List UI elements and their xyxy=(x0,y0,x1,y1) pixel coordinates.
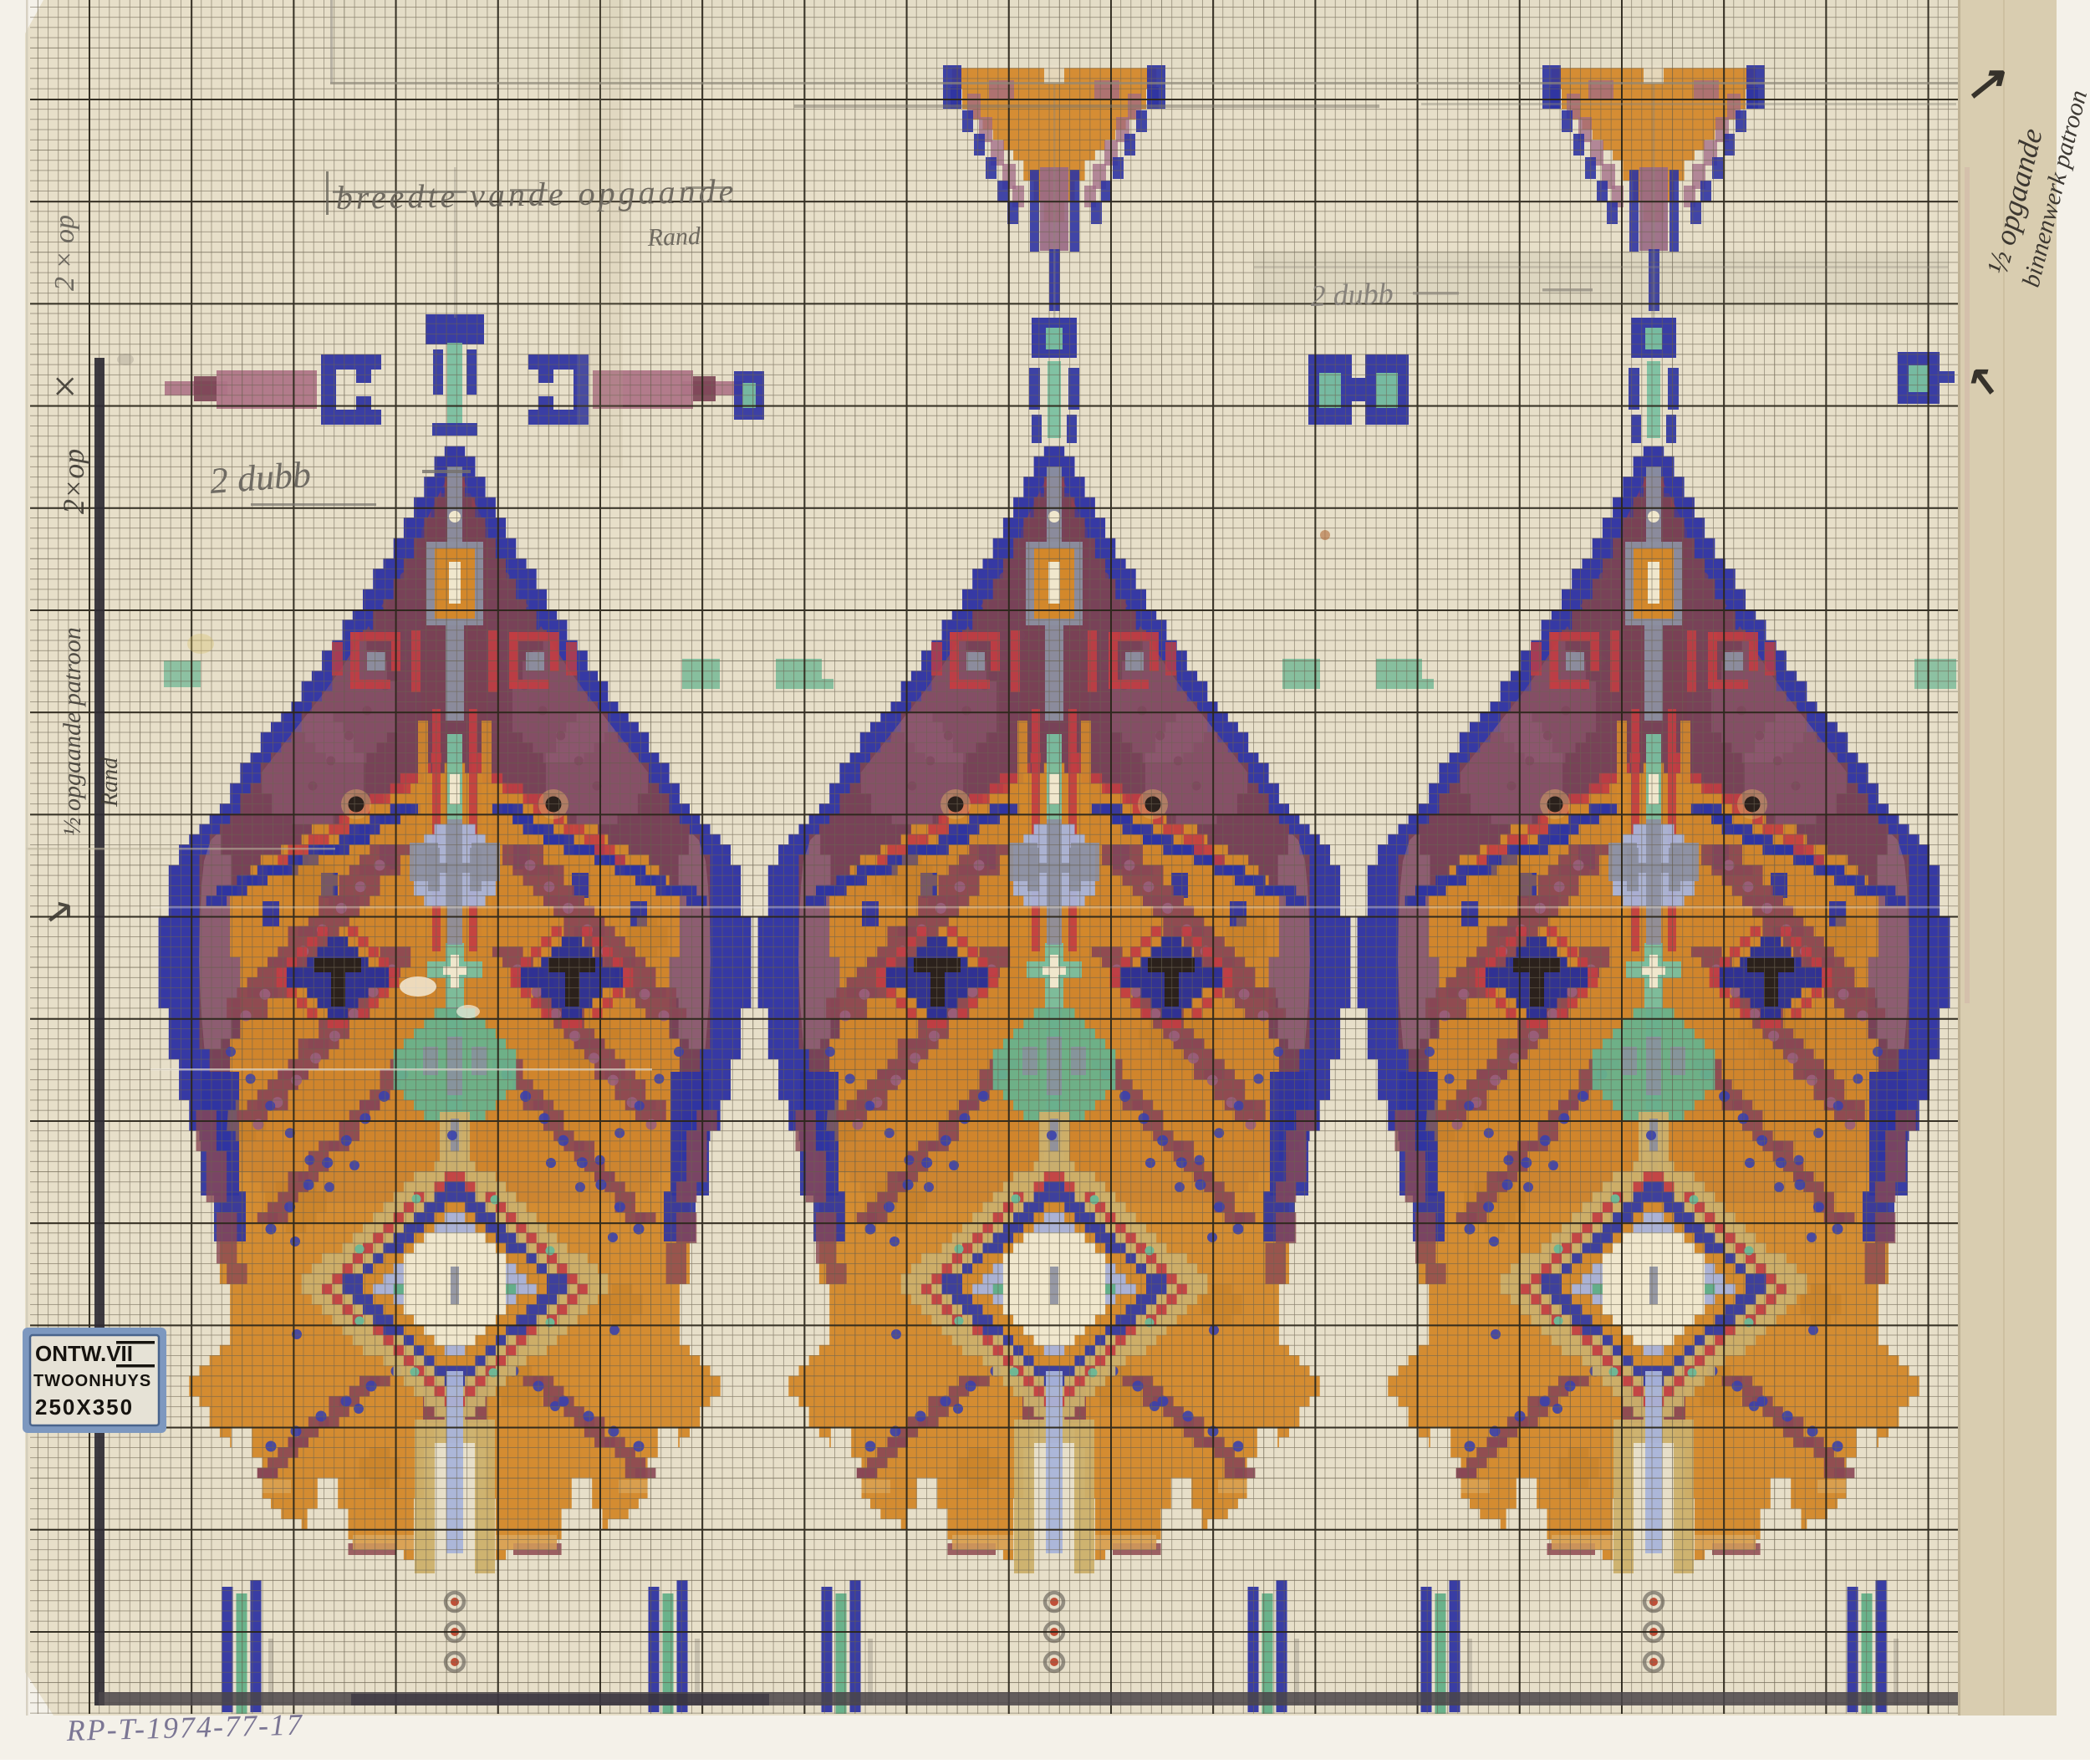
svg-text:2 × op: 2 × op xyxy=(49,215,80,291)
svg-text:Rand: Rand xyxy=(97,757,123,808)
svg-text:250X350: 250X350 xyxy=(35,1394,134,1420)
svg-text:↖: ↖ xyxy=(1963,357,1998,404)
svg-text:↘: ↘ xyxy=(37,900,79,932)
svg-text:RP-T-1974-77-17: RP-T-1974-77-17 xyxy=(65,1708,303,1747)
svg-text:2×op: 2×op xyxy=(57,449,90,514)
svg-text:½ opgaande patroon: ½ opgaande patroon xyxy=(59,627,86,836)
svg-text:2 dubb: 2 dubb xyxy=(208,454,312,502)
svg-text:Rand: Rand xyxy=(646,222,701,252)
svg-text:breedte vande opgaande: breedte vande opgaande xyxy=(335,172,737,217)
svg-text:↗: ↗ xyxy=(1965,58,2006,110)
svg-text:TWOONHUYS: TWOONHUYS xyxy=(33,1372,151,1390)
svg-text:2 dubb: 2 dubb xyxy=(1310,277,1394,313)
svg-text:×: × xyxy=(42,372,89,401)
svg-text:ONTW.VII: ONTW.VII xyxy=(35,1341,133,1366)
